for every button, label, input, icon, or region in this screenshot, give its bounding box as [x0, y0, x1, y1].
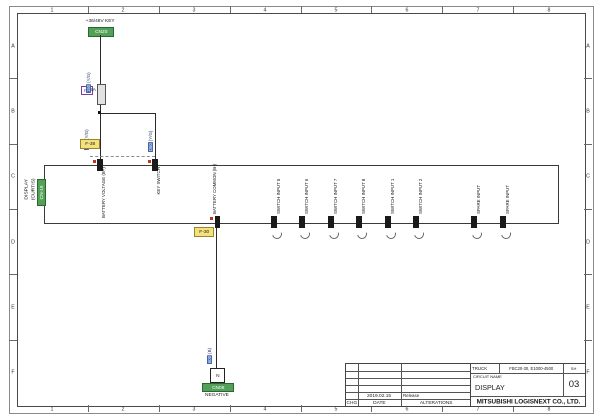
circuit-name-label: CIRCUIT NAME: [473, 375, 502, 379]
pin-label-key-switch: KEY SWITCH: [156, 167, 161, 220]
negative-ref-text: CN06: [212, 385, 224, 390]
zone-col-label: 1: [51, 406, 54, 411]
table-line: [346, 371, 471, 372]
zone-col-label: 5: [335, 406, 338, 411]
zone-tick: [301, 405, 302, 412]
ref-link-f38: F-38: [80, 139, 100, 149]
zone-col-label: 5: [335, 7, 338, 12]
wire-junction-dot: [98, 111, 101, 114]
wire-color-code: (Y/G): [86, 72, 91, 83]
component-subtitle: (CURTIS): [30, 168, 36, 211]
zone-col-label: 7: [477, 406, 480, 411]
company-name: MITSUBISHI LOGISNEXT CO., LTD.: [476, 397, 580, 404]
wire-label-key-branch: D50(Y/G): [148, 99, 153, 152]
revision-date: 2019.02.15: [367, 393, 391, 398]
zone-row-label: D: [11, 239, 15, 244]
source-ref-chip: CN20: [88, 27, 114, 37]
wire-number-chip: 600: [207, 355, 212, 364]
linked-pins-dashed-line: [90, 156, 155, 157]
zone-row-label: B: [586, 108, 590, 113]
zone-col-label: 8: [548, 406, 551, 411]
zone-row-label: C: [586, 173, 590, 178]
wire-branch-horizontal: [100, 113, 155, 114]
negative-label: NEGATIVE: [192, 391, 242, 398]
zone-row-label: A: [11, 43, 15, 48]
chg-header-cell: CHG: [346, 399, 358, 406]
zone-col-label: 6: [406, 7, 409, 12]
pin-switch-input-5: [271, 216, 277, 228]
zone-row-label: F: [586, 369, 589, 374]
alterations-header-cell: ALTERATIONS: [401, 399, 471, 406]
alterations-header: ALTERATIONS: [420, 400, 453, 405]
revision-date-cell: 2019.02.15: [358, 392, 401, 399]
sheet-number: 03: [569, 379, 580, 390]
zone-col-label: 8: [548, 7, 551, 12]
sheet-header: SH: [571, 367, 577, 371]
pin-number-mark: [148, 160, 151, 163]
truck-value: FBC20-30, E1000-4500: [509, 366, 553, 370]
truck-label-cell: TRUCK: [472, 364, 499, 373]
pin-label-switch-input-7: SWITCH INPUT 7: [333, 161, 338, 214]
source-ref-text: CN20: [95, 30, 107, 35]
wire-number-chip: 150: [86, 84, 91, 93]
wire-negative: [216, 228, 217, 368]
circuit-name-cell: DISPLAY: [475, 379, 563, 395]
pin-switch-input-6: [299, 216, 305, 228]
pin-switch-input-7: [328, 216, 334, 228]
zone-tick: [230, 405, 231, 412]
zone-col-label: 6: [406, 406, 409, 411]
company-cell: MITSUBISHI LOGISNEXT CO., LTD.: [471, 396, 585, 406]
zone-col-label: 4: [264, 7, 267, 12]
negative-terminal-symbol: N: [216, 373, 219, 378]
pin-label-switch-input-6: SWITCH INPUT 6: [304, 161, 309, 214]
zone-row-label: E: [586, 304, 590, 309]
date-header: DATE: [373, 400, 385, 405]
zone-row-label: C: [11, 173, 15, 178]
source-label-text: +36/48V KEY: [86, 18, 115, 23]
pin-label-switch-input-8: SWITCH INPUT 8: [361, 161, 366, 214]
zone-tick: [230, 6, 231, 13]
pin-spare-input-1: [471, 216, 477, 228]
component-ref-chip: CN-19: [37, 179, 46, 206]
zone-tick: [584, 274, 592, 275]
zone-tick: [584, 340, 592, 341]
pin-label-spare-input-1: SPARE INPUT: [476, 161, 481, 214]
schematic-sheet: 1 2 3 4 5 6 7 8 1 2 3 4 5 6 7 8 A B C D …: [0, 0, 600, 419]
chg-header: CHG: [347, 400, 358, 405]
zone-tick: [442, 6, 443, 13]
revision-note: Release: [403, 393, 419, 397]
wire-label-key: 150(Y/G): [86, 40, 91, 93]
pin-switch-input-2: [413, 216, 419, 228]
pin-label-battery-voltage: BATTERY VOLTAGE (B+): [101, 167, 106, 220]
zone-tick: [88, 405, 89, 412]
truck-value-cell: FBC20-30, E1000-4500: [499, 364, 563, 373]
pin-number-mark: [93, 160, 96, 163]
component-ref-text: CN-19: [39, 186, 44, 200]
zone-tick: [9, 340, 17, 341]
ref-link-f38-text: F-38: [85, 141, 95, 146]
zone-col-label: 1: [51, 7, 54, 12]
zone-tick: [584, 144, 592, 145]
zone-row-label: F: [11, 369, 14, 374]
zone-row-label: B: [11, 108, 15, 113]
table-line: [346, 378, 471, 379]
zone-col-label: 4: [264, 406, 267, 411]
source-label: +36/48V KEY: [70, 17, 130, 24]
pin-label-switch-input-2: SWITCH INPUT 2: [418, 161, 423, 214]
pin-label-spare-input-2: SPARE INPUT: [505, 161, 510, 214]
table-line: [346, 385, 471, 386]
zone-col-label: 3: [193, 406, 196, 411]
pin-label-switch-input-5: SWITCH INPUT 5: [276, 161, 281, 214]
pin-battery-common: [215, 216, 221, 228]
zone-tick: [584, 78, 592, 79]
zone-col-label: 2: [122, 7, 125, 12]
wire-label-negative: 600(B): [207, 311, 212, 364]
zone-col-label: 7: [477, 7, 480, 12]
truck-label: TRUCK: [472, 366, 487, 370]
sheet-header-cell: SH: [563, 364, 585, 373]
pin-switch-input-1: [385, 216, 391, 228]
wire-number-chip: D50: [148, 142, 153, 152]
zone-tick: [88, 6, 89, 13]
zone-tick: [9, 144, 17, 145]
wire-color-code: (Y/G): [148, 131, 153, 142]
zone-col-label: 3: [193, 7, 196, 12]
zone-tick: [159, 405, 160, 412]
circuit-name: DISPLAY: [475, 383, 505, 392]
ref-link-f30-text: F-30: [199, 229, 209, 234]
pin-spare-input-2: [500, 216, 506, 228]
revision-table: 2019.02.15 Release CHG DATE ALTERATIONS: [345, 363, 472, 407]
zone-tick: [9, 274, 17, 275]
pin-label-battery-common: BATTERY COMMON (B-): [212, 161, 217, 214]
date-header-cell: DATE: [358, 399, 401, 406]
zone-row-label: D: [586, 239, 590, 244]
zone-tick: [584, 209, 592, 210]
zone-tick: [159, 6, 160, 13]
pin-number-mark: [210, 217, 213, 220]
negative-terminal-icon: N: [210, 368, 225, 383]
zone-row-label: E: [11, 304, 15, 309]
wire-color-code: (B): [207, 348, 212, 354]
wire-key-switch-branch: [155, 113, 156, 160]
ref-link-f30: F-30: [194, 227, 214, 237]
zone-tick: [9, 78, 17, 79]
pin-label-switch-input-1: SWITCH INPUT 1: [390, 161, 395, 214]
zone-tick: [513, 6, 514, 13]
component-title: DISPLAY: [23, 168, 29, 211]
zone-col-label: 2: [122, 406, 125, 411]
sheet-number-cell: 03: [563, 373, 585, 396]
title-block: TRUCK FBC20-30, E1000-4500 SH CIRCUIT NA…: [470, 363, 586, 407]
zone-tick: [371, 6, 372, 13]
negative-label-text: NEGATIVE: [205, 392, 229, 397]
pin-switch-input-8: [356, 216, 362, 228]
revision-note-cell: Release: [403, 392, 471, 399]
zone-row-label: A: [586, 43, 590, 48]
zone-tick: [301, 6, 302, 13]
zone-tick: [9, 209, 17, 210]
